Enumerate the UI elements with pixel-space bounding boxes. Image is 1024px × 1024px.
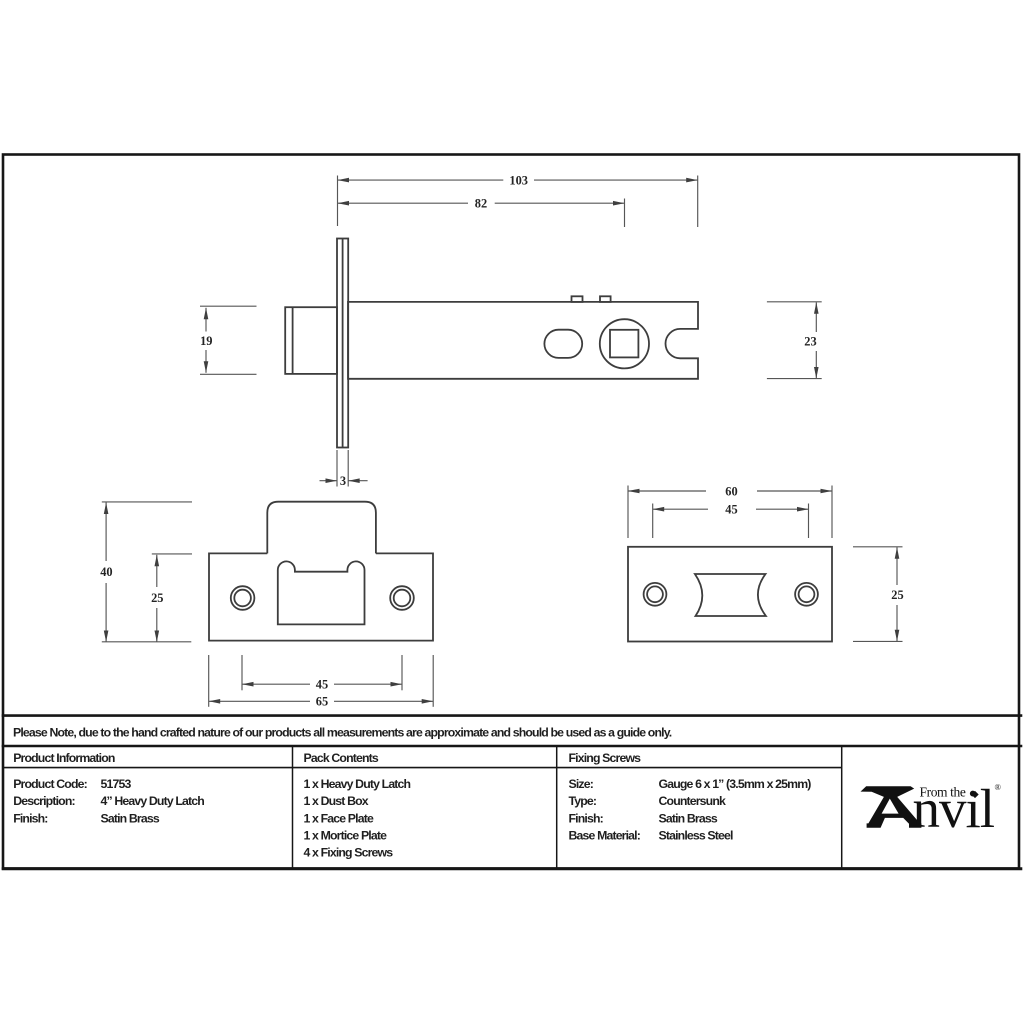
svg-text:1 x Dust Box: 1 x Dust Box xyxy=(304,794,369,808)
svg-text:65: 65 xyxy=(316,695,328,709)
svg-text:Product Information: Product Information xyxy=(13,751,115,765)
svg-text:Countersunk: Countersunk xyxy=(659,794,726,808)
svg-text:3: 3 xyxy=(340,474,346,488)
svg-text:1 x Mortice Plate: 1 x Mortice Plate xyxy=(304,829,388,843)
svg-text:45: 45 xyxy=(316,678,328,692)
svg-text:51753: 51753 xyxy=(101,777,132,791)
svg-text:Gauge 6 x 1” (3.5mm x 25mm): Gauge 6 x 1” (3.5mm x 25mm) xyxy=(659,777,812,791)
svg-text:23: 23 xyxy=(804,334,816,348)
svg-text:60: 60 xyxy=(725,484,737,498)
svg-text:Please Note, due to the hand c: Please Note, due to the hand crafted nat… xyxy=(13,725,672,739)
svg-text:25: 25 xyxy=(891,588,903,602)
svg-text:Finish:: Finish: xyxy=(13,811,47,825)
svg-text:From the: From the xyxy=(920,785,966,800)
svg-text:4” Heavy Duty Latch: 4” Heavy Duty Latch xyxy=(101,794,205,808)
svg-text:Description:: Description: xyxy=(13,794,75,808)
svg-text:Product Code:: Product Code: xyxy=(13,777,87,791)
svg-text:Stainless Steel: Stainless Steel xyxy=(659,829,733,843)
svg-text:®: ® xyxy=(995,782,1002,792)
svg-text:25: 25 xyxy=(151,591,163,605)
svg-text:19: 19 xyxy=(200,334,212,348)
svg-text:Size:: Size: xyxy=(569,777,593,791)
svg-text:82: 82 xyxy=(475,197,487,211)
svg-text:Satin Brass: Satin Brass xyxy=(101,811,160,825)
svg-text:1 x Face Plate: 1 x Face Plate xyxy=(304,811,374,825)
svg-text:Type:: Type: xyxy=(569,794,597,808)
svg-text:103: 103 xyxy=(509,173,528,187)
svg-text:1 x Heavy Duty Latch: 1 x Heavy Duty Latch xyxy=(304,777,411,791)
svg-text:Base Material:: Base Material: xyxy=(569,829,640,843)
svg-text:Satin Brass: Satin Brass xyxy=(659,811,718,825)
svg-text:45: 45 xyxy=(725,503,737,517)
svg-text:Finish:: Finish: xyxy=(569,811,603,825)
svg-text:Pack Contents: Pack Contents xyxy=(304,751,379,765)
svg-text:Fixing Screws: Fixing Screws xyxy=(569,751,642,765)
svg-text:4 x Fixing Screws: 4 x Fixing Screws xyxy=(304,846,394,860)
svg-text:40: 40 xyxy=(100,565,112,579)
